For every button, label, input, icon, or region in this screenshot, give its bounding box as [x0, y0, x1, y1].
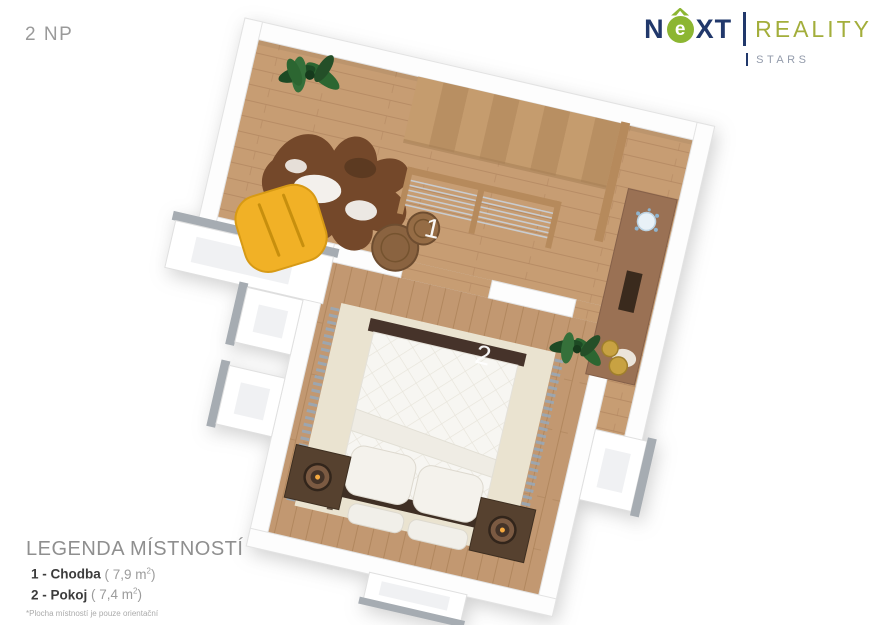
floor-label: 2 NP — [25, 24, 73, 46]
logo-e-badge: e — [667, 16, 694, 43]
nightstand-left — [284, 444, 351, 509]
legend-item-2-label: 2 - Pokoj — [31, 587, 87, 602]
legend-item-2: 2 - Pokoj ( 7,4 m2) — [31, 587, 243, 603]
floor-plan: 1 — [0, 0, 894, 625]
logo-reality: REALITY — [755, 18, 872, 41]
area-text: ( 7,9 m — [105, 567, 147, 582]
legend: LEGENDA MÍSTNOSTÍ 1 - Chodba ( 7,9 m2) 2… — [26, 538, 243, 618]
legend-item-1: 1 - Chodba ( 7,9 m2) — [31, 566, 243, 582]
legend-item-1-label: 1 - Chodba — [31, 567, 101, 582]
nightstand-right — [469, 497, 536, 562]
legend-title: LEGENDA MÍSTNOSTÍ — [26, 538, 243, 561]
area-close: ) — [151, 567, 156, 582]
area-text: ( 7,4 m — [91, 587, 133, 602]
logo-divider — [743, 12, 746, 46]
logo-next-n: N — [644, 16, 665, 43]
next-reality-logo: N e XT REALITY STARS — [644, 12, 872, 66]
logo-row-sub: STARS — [644, 53, 872, 66]
legend-item-2-area: ( 7,4 m2) — [91, 587, 142, 602]
legend-item-1-area: ( 7,9 m2) — [105, 567, 156, 582]
area-close: ) — [138, 587, 143, 602]
legend-footnote: *Plocha místností je pouze orientační — [26, 609, 243, 618]
logo-row-main: N e XT REALITY — [644, 12, 872, 46]
logo-e-letter: e — [675, 20, 686, 39]
logo-divider-small — [746, 53, 748, 66]
plan-rotated-group: 1 — [97, 12, 728, 625]
page: { "page": { "floor_label": "2 NP", "back… — [0, 0, 894, 625]
logo-stars: STARS — [756, 54, 809, 66]
logo-next-xt: XT — [696, 16, 733, 43]
